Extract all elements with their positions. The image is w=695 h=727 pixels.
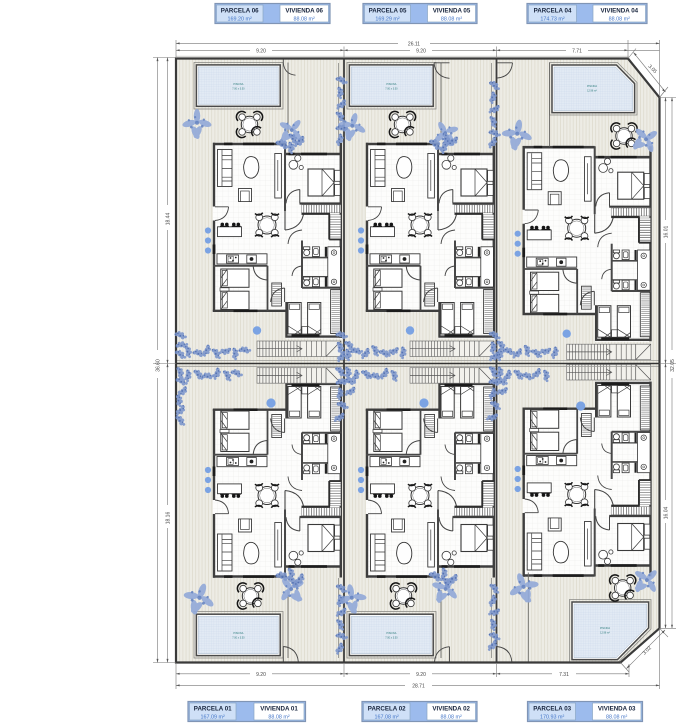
- svg-text:VIVIENDA 05: VIVIENDA 05: [433, 7, 471, 14]
- svg-text:PARCELA 02: PARCELA 02: [368, 705, 406, 712]
- svg-text:9.20: 9.20: [416, 48, 426, 54]
- svg-text:7.00 x 3.50: 7.00 x 3.50: [232, 88, 245, 91]
- svg-text:170.93 m²: 170.93 m²: [540, 714, 564, 720]
- svg-text:7.00 x 3.50: 7.00 x 3.50: [385, 88, 398, 91]
- svg-text:18.16: 18.16: [165, 512, 171, 525]
- svg-text:88.08 m²: 88.08 m²: [441, 714, 462, 720]
- svg-text:PISCINA: PISCINA: [600, 627, 610, 630]
- svg-text:PISCINA: PISCINA: [233, 83, 243, 86]
- svg-text:PISCINA: PISCINA: [386, 632, 396, 635]
- svg-text:88.08 m²: 88.08 m²: [441, 16, 462, 22]
- svg-text:12.96 m²: 12.96 m²: [587, 90, 597, 93]
- svg-text:PISCINA: PISCINA: [233, 632, 243, 635]
- svg-text:16.01: 16.01: [663, 226, 669, 239]
- svg-text:28.71: 28.71: [412, 683, 425, 689]
- svg-text:7.31: 7.31: [559, 672, 569, 678]
- svg-text:88.08 m²: 88.08 m²: [606, 714, 627, 720]
- svg-text:VIVIENDA 06: VIVIENDA 06: [285, 7, 323, 14]
- svg-text:9.20: 9.20: [256, 48, 266, 54]
- svg-text:26.11: 26.11: [408, 41, 420, 47]
- svg-text:PARCELA 04: PARCELA 04: [534, 7, 572, 14]
- svg-text:PARCELA 01: PARCELA 01: [194, 705, 232, 712]
- svg-text:PISCINA: PISCINA: [587, 85, 597, 88]
- svg-text:VIVIENDA 02: VIVIENDA 02: [432, 705, 470, 712]
- svg-text:PARCELA 03: PARCELA 03: [533, 705, 571, 712]
- svg-text:VIVIENDA 04: VIVIENDA 04: [600, 7, 638, 14]
- svg-text:9.20: 9.20: [416, 672, 426, 678]
- svg-text:PARCELA 06: PARCELA 06: [221, 7, 259, 14]
- svg-text:7.00 x 3.50: 7.00 x 3.50: [232, 637, 245, 640]
- svg-text:167.09 m²: 167.09 m²: [201, 714, 225, 720]
- svg-text:88.08 m²: 88.08 m²: [609, 16, 630, 22]
- svg-text:VIVIENDA 03: VIVIENDA 03: [598, 705, 636, 712]
- svg-text:169.20 m²: 169.20 m²: [228, 16, 252, 22]
- svg-text:12.96 m²: 12.96 m²: [600, 632, 610, 635]
- svg-text:36.60: 36.60: [155, 359, 161, 372]
- svg-text:32.05: 32.05: [670, 359, 676, 372]
- svg-text:VIVIENDA 01: VIVIENDA 01: [260, 705, 298, 712]
- svg-text:PARCELA 05: PARCELA 05: [369, 7, 407, 14]
- svg-text:174.73 m²: 174.73 m²: [540, 16, 564, 22]
- svg-text:9.20: 9.20: [256, 672, 266, 678]
- svg-text:88.08 m²: 88.08 m²: [294, 16, 315, 22]
- svg-text:PISCINA: PISCINA: [386, 83, 396, 86]
- svg-text:18.44: 18.44: [165, 213, 171, 226]
- svg-text:169.29 m²: 169.29 m²: [375, 16, 399, 22]
- svg-text:7.71: 7.71: [572, 48, 582, 54]
- svg-text:88.08 m²: 88.08 m²: [268, 714, 289, 720]
- svg-text:16.04: 16.04: [663, 507, 669, 520]
- svg-text:167.08 m²: 167.08 m²: [375, 714, 399, 720]
- svg-text:7.00 x 3.50: 7.00 x 3.50: [385, 637, 398, 640]
